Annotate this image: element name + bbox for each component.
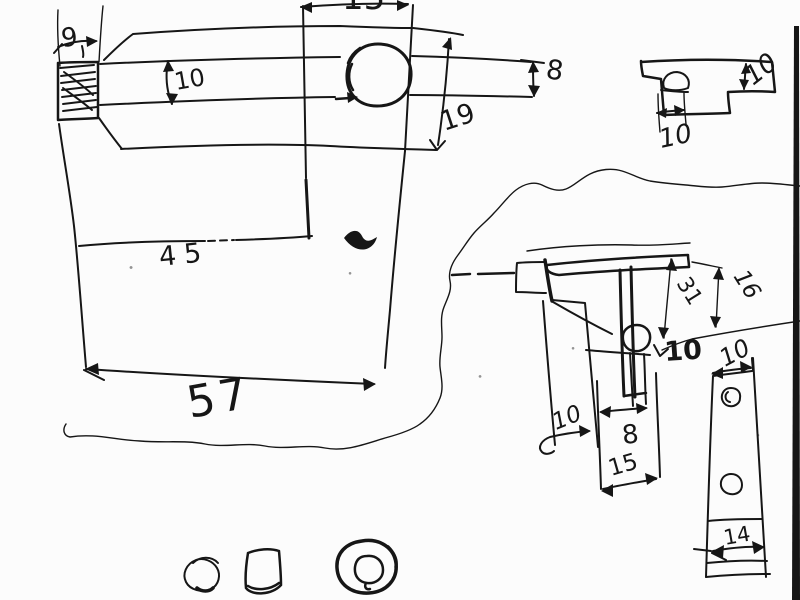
arrowhead <box>579 425 591 437</box>
arrowhead <box>713 267 724 280</box>
flange <box>547 255 689 275</box>
mounting-strip: 10 14 <box>694 333 770 577</box>
main-part: 9 10 15 8 19 <box>54 0 565 429</box>
arrowhead <box>645 473 658 485</box>
dim-31-label: 31 <box>671 273 707 310</box>
thumbnail-sketches <box>184 540 396 593</box>
arrowhead <box>739 79 749 90</box>
clamp-bracket: 31 16 10 10 15 8 <box>452 243 800 497</box>
ball-head-overstroke <box>348 48 360 90</box>
dim-31-line <box>664 259 671 338</box>
hole-circle <box>623 325 650 351</box>
arrowhead <box>363 378 376 391</box>
strip-hole-lower <box>721 474 742 494</box>
arrowhead <box>86 36 98 47</box>
knob-hatching <box>60 65 97 111</box>
dim-9-label: 9 <box>60 22 80 54</box>
centerline-dash-dot <box>452 273 514 275</box>
arrowhead <box>601 484 613 497</box>
scan-border-right <box>792 26 800 600</box>
neck-lines <box>553 302 650 355</box>
torn-edge-line <box>64 169 800 449</box>
tee-slot-label: 10 <box>656 119 695 155</box>
arrowhead <box>656 108 667 118</box>
ring-doodle-inner <box>355 556 383 589</box>
dim-top-label-partial: 15 <box>342 0 385 18</box>
dim-8pin-label: 8 <box>621 419 641 451</box>
back-plate-bold <box>620 267 635 397</box>
sketch-canvas: 9 10 15 8 19 <box>0 0 800 600</box>
wavy-line-above-flange <box>527 243 690 251</box>
ink-blot <box>344 231 377 250</box>
dim-10-label: 10 <box>172 63 207 96</box>
arrowhead <box>442 37 452 50</box>
back-plate-foot <box>624 393 646 396</box>
pebble-doodle <box>184 558 219 591</box>
body-mid-label: 45 <box>157 237 210 273</box>
dim-10-bold-label: 10 <box>663 334 703 368</box>
ring-doodle-outer <box>337 540 396 593</box>
arrowhead <box>710 316 721 328</box>
cylinder-doodle <box>246 549 281 593</box>
strip-hole-upper <box>722 388 740 406</box>
collar-band <box>303 5 413 178</box>
tab-outline <box>516 262 546 293</box>
arrowhead <box>300 2 312 13</box>
dim-8-label: 8 <box>544 54 565 87</box>
torn-edge-path <box>64 169 800 449</box>
collar-extension-bold <box>306 180 309 238</box>
scanned-hand-sketch: 9 10 15 8 19 <box>0 0 800 600</box>
dim-57-label: 57 <box>183 367 255 428</box>
strip-dim-14-label: 14 <box>722 522 752 550</box>
tee-slot-notch <box>661 72 689 92</box>
dim-15-label: 15 <box>605 449 640 482</box>
body-mid-line-dotted <box>208 240 234 241</box>
dim-16-label: 16 <box>728 265 766 304</box>
arrowhead <box>397 0 409 11</box>
tee-part: 10 10 <box>641 48 783 155</box>
arrowhead <box>599 406 611 418</box>
pebble-doodle-dab <box>197 588 213 591</box>
shaft-outline <box>99 26 532 150</box>
arrowhead <box>666 258 677 271</box>
arrowhead <box>528 85 540 97</box>
